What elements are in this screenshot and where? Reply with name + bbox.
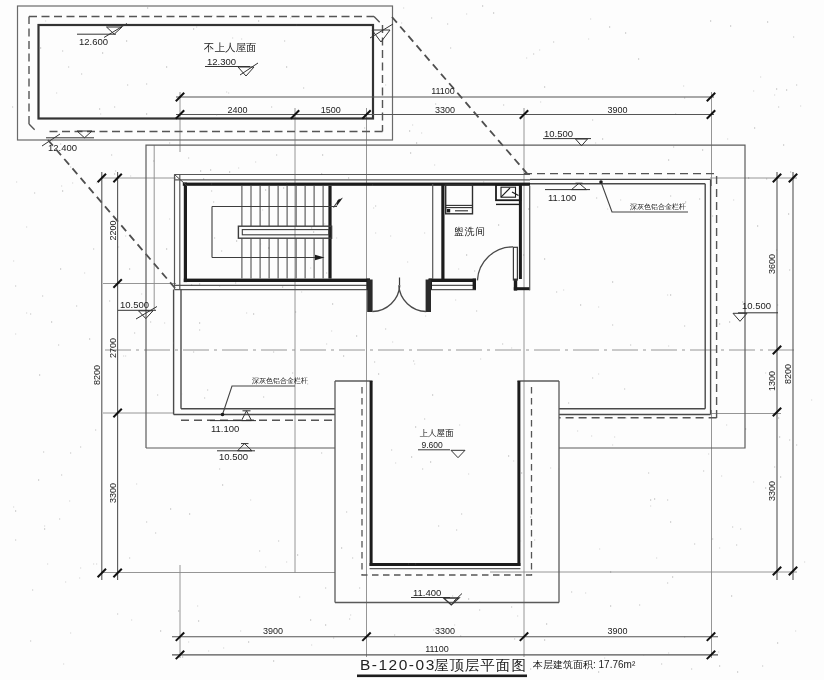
svg-text:3900: 3900 [607,626,627,636]
svg-text:9.600: 9.600 [422,440,444,450]
svg-text:11100: 11100 [425,644,449,654]
svg-text:2400: 2400 [227,105,247,115]
svg-text:不上人屋面: 不上人屋面 [203,41,257,53]
svg-text:3300: 3300 [767,481,777,501]
svg-text:10.500: 10.500 [742,300,771,311]
svg-text:11.100: 11.100 [211,423,239,434]
svg-text:10.500: 10.500 [120,299,149,310]
svg-text:12.300: 12.300 [207,56,236,67]
svg-text:屋顶层平面图: 屋顶层平面图 [434,657,527,673]
svg-text:1500: 1500 [321,105,341,115]
svg-text:10.500: 10.500 [219,451,248,462]
svg-text:B-120-03: B-120-03 [360,656,436,673]
svg-text:12.600: 12.600 [79,36,108,47]
svg-text:8200: 8200 [783,364,793,384]
svg-text:3900: 3900 [263,626,283,636]
svg-text:3300: 3300 [435,105,455,115]
svg-text:10.500: 10.500 [544,128,573,139]
svg-text:3600: 3600 [767,254,777,274]
svg-text:1300: 1300 [767,371,777,391]
svg-text:8200: 8200 [92,365,102,385]
svg-text:2700: 2700 [108,338,118,358]
svg-text:11100: 11100 [431,86,455,96]
svg-text:11.100: 11.100 [548,192,576,203]
svg-text:12.400: 12.400 [48,142,77,153]
svg-text:深灰色铝合金栏杆: 深灰色铝合金栏杆 [252,377,308,385]
svg-text:上人屋面: 上人屋面 [420,428,455,438]
svg-text:3900: 3900 [607,105,627,115]
svg-text:2200: 2200 [108,220,118,240]
svg-text:盥洗间: 盥洗间 [454,226,486,237]
svg-text:深灰色铝合金栏杆: 深灰色铝合金栏杆 [630,203,686,211]
svg-text:11.400: 11.400 [413,587,441,598]
svg-text:3300: 3300 [108,483,118,503]
svg-text:本层建筑面积: 17.76m²: 本层建筑面积: 17.76m² [532,659,636,670]
svg-text:3300: 3300 [435,626,455,636]
